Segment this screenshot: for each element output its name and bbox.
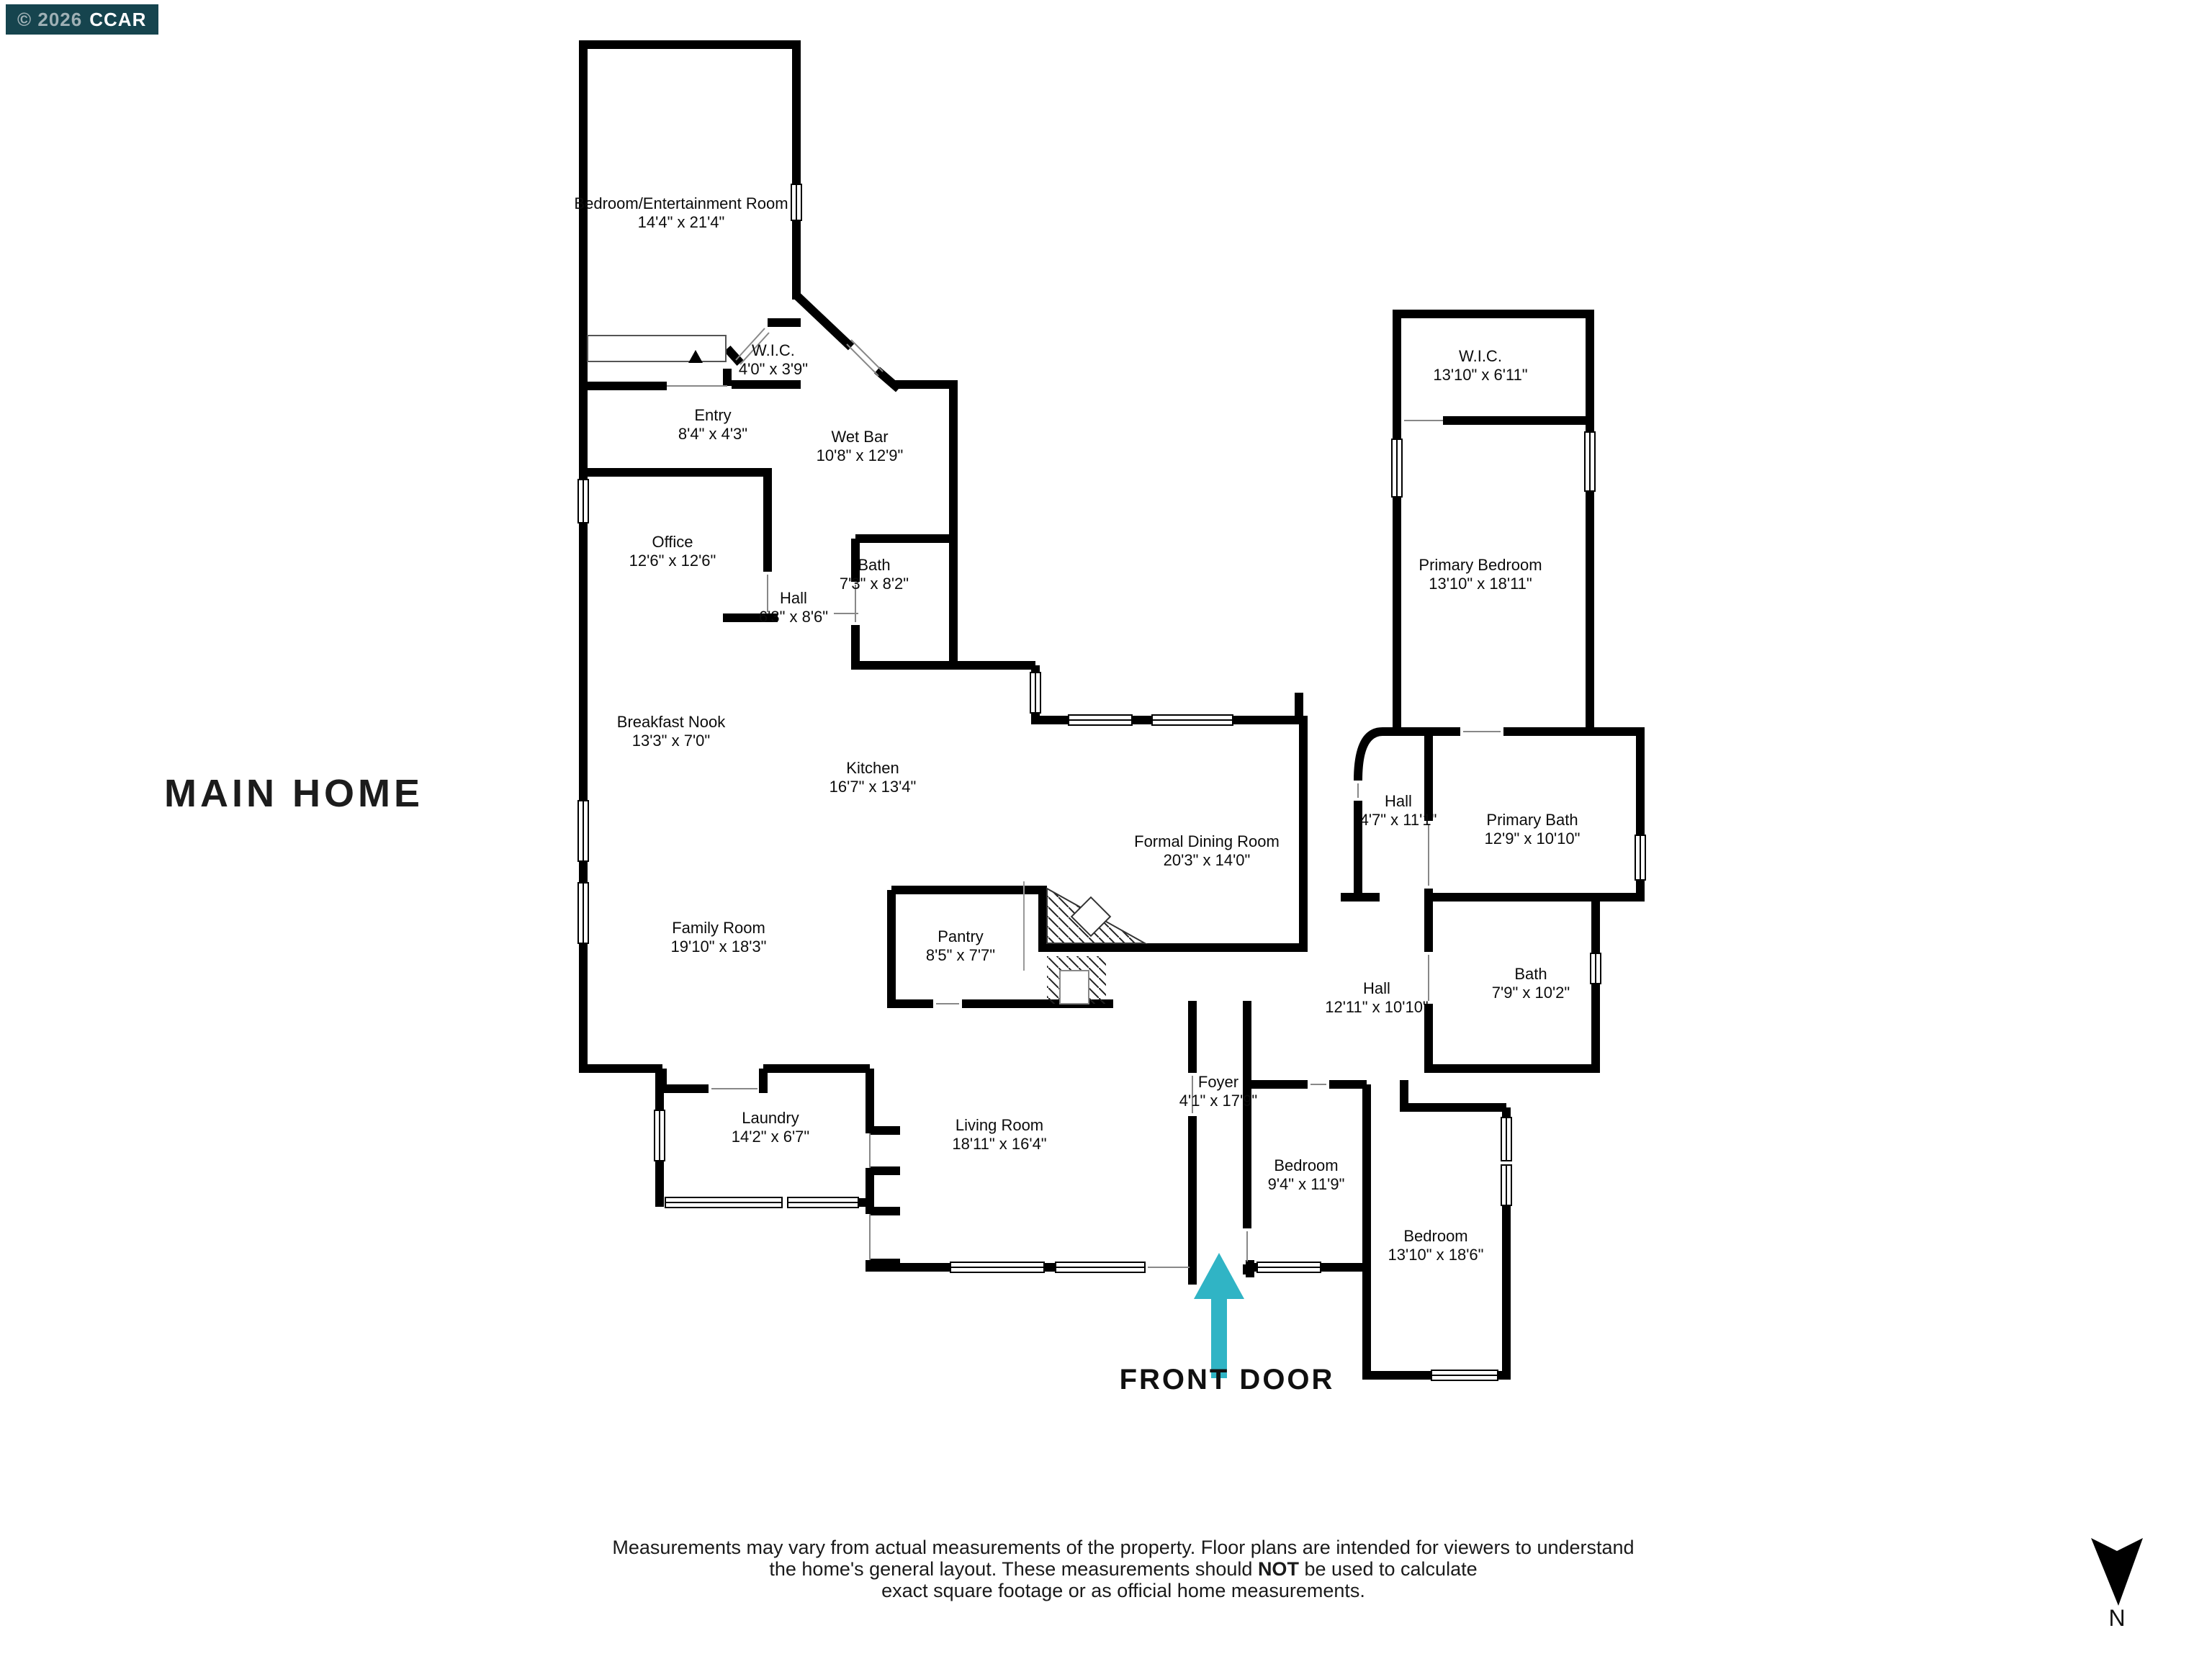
room-label-office: Office12'6" x 12'6" [629,534,716,572]
room-label-bath-79: Bath7'9" x 10'2" [1492,966,1570,1004]
room-label-pantry: Pantry8'5" x 7'7" [926,929,995,966]
room-label-primary-bath: Primary Bath12'9" x 10'10" [1485,812,1581,850]
room-label-laundry: Laundry14'2" x 6'7" [732,1110,809,1148]
room-label-primary-bedroom: Primary Bedroom13'10" x 18'11" [1419,557,1542,595]
room-label-wet-bar: Wet Bar10'8" x 12'9" [817,429,904,467]
floor-plan-drawing [0,0,2212,1659]
compass: N [2074,1527,2160,1642]
room-label-living-room: Living Room18'11" x 16'4" [952,1118,1046,1155]
front-door-label: FRONT DOOR [1120,1364,1335,1398]
room-label-bath-upper: Bath7'3" x 8'2" [840,557,909,595]
room-label-bedroom-1310: Bedroom13'10" x 18'6" [1388,1228,1484,1266]
room-label-formal-dining: Formal Dining Room20'3" x 14'0" [1134,834,1280,871]
copyright-year: © 2026 [17,9,82,30]
room-label-hall-47: Hall4'7" x 11'1" [1360,793,1437,831]
walls [579,40,1640,1380]
disclaimer-line-3: exact square footage or as official home… [547,1580,1699,1601]
disclaimer-line-1: Measurements may vary from actual measur… [547,1537,1699,1558]
front-door-arrow [1194,1253,1244,1378]
room-label-kitchen: Kitchen16'7" x 13'4" [829,760,917,798]
room-label-wic-primary: W.I.C.13'10" x 6'11" [1433,349,1527,386]
brand-name: CCAR [89,9,146,30]
room-label-foyer: Foyer4'1" x 17'9" [1179,1074,1257,1112]
room-label-entry: Entry8'4" x 4'3" [678,408,747,445]
copyright-badge: © 2026 CCAR [6,4,158,35]
compass-n-label: N [2108,1607,2125,1633]
room-label-bedroom-entertainment: Bedroom/Entertainment Room14'4" x 21'4" [574,196,788,233]
entry-closet [588,336,726,363]
room-label-hall-small: Hall6'3" x 8'6" [759,590,828,628]
room-label-hall-1211: Hall12'11" x 10'10" [1325,981,1429,1018]
floor-plan-page: © 2026 CCAR MAIN HOME Bedroom/Entertainm… [0,0,2212,1659]
room-label-breakfast-nook: Breakfast Nook13'3" x 7'0" [617,714,725,752]
disclaimer-text: Measurements may vary from actual measur… [547,1537,1699,1601]
page-title: MAIN HOME [164,772,423,817]
room-label-bedroom-94: Bedroom9'4" x 11'9" [1268,1158,1345,1195]
room-label-family-room: Family Room19'10" x 18'3" [671,920,767,958]
disclaimer-line-2: the home's general layout. These measure… [547,1558,1699,1580]
room-label-wic-top: W.I.C.4'0" x 3'9" [739,343,808,380]
